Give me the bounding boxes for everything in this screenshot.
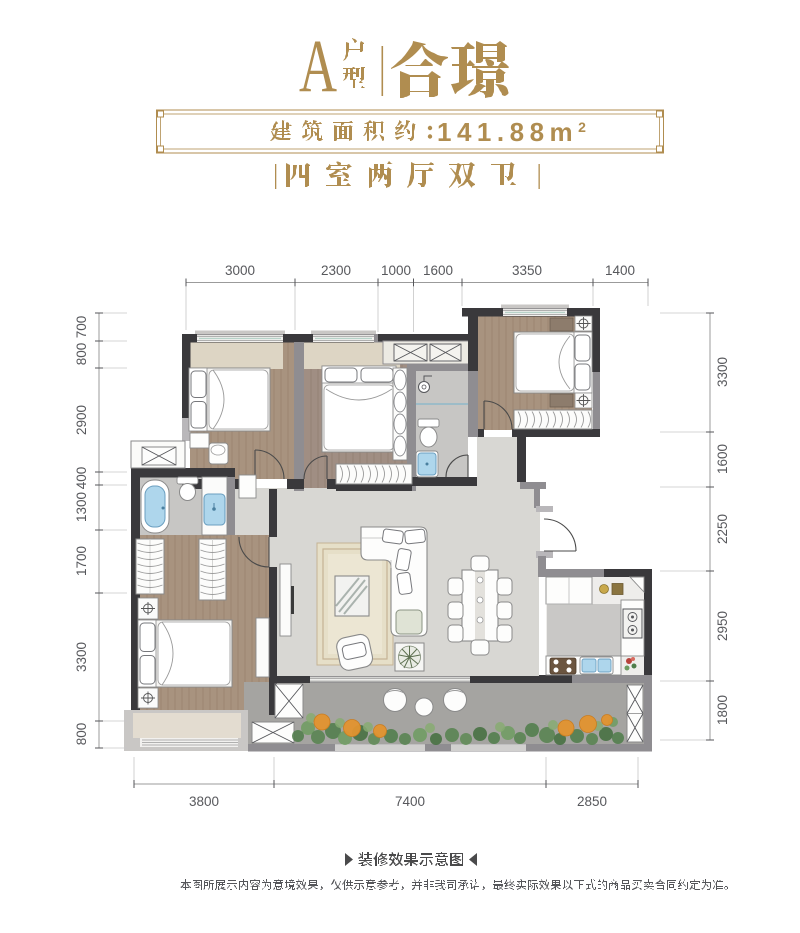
svg-text:1400: 1400 — [605, 263, 635, 278]
svg-text:800: 800 — [74, 343, 89, 366]
svg-text:7400: 7400 — [395, 794, 425, 809]
svg-text:3300: 3300 — [715, 357, 730, 387]
svg-text:2300: 2300 — [321, 263, 351, 278]
svg-text:1700: 1700 — [74, 546, 89, 576]
svg-text:2250: 2250 — [715, 514, 730, 544]
svg-text:800: 800 — [74, 723, 89, 746]
svg-text:2900: 2900 — [74, 405, 89, 435]
svg-text:2950: 2950 — [715, 611, 730, 641]
svg-text:3300: 3300 — [74, 642, 89, 672]
svg-text:3350: 3350 — [512, 263, 542, 278]
svg-text:700: 700 — [74, 316, 89, 339]
svg-text:400: 400 — [74, 467, 89, 490]
svg-text:141.88m2: 141.88m2 — [437, 117, 591, 147]
svg-text:1600: 1600 — [715, 444, 730, 474]
svg-text:A: A — [299, 25, 337, 108]
svg-text:3000: 3000 — [225, 263, 255, 278]
svg-text:1800: 1800 — [715, 695, 730, 725]
svg-text:3800: 3800 — [189, 794, 219, 809]
svg-text:1600: 1600 — [423, 263, 453, 278]
svg-text:1300: 1300 — [74, 492, 89, 522]
svg-text:1000: 1000 — [381, 263, 411, 278]
svg-text:2850: 2850 — [577, 794, 607, 809]
